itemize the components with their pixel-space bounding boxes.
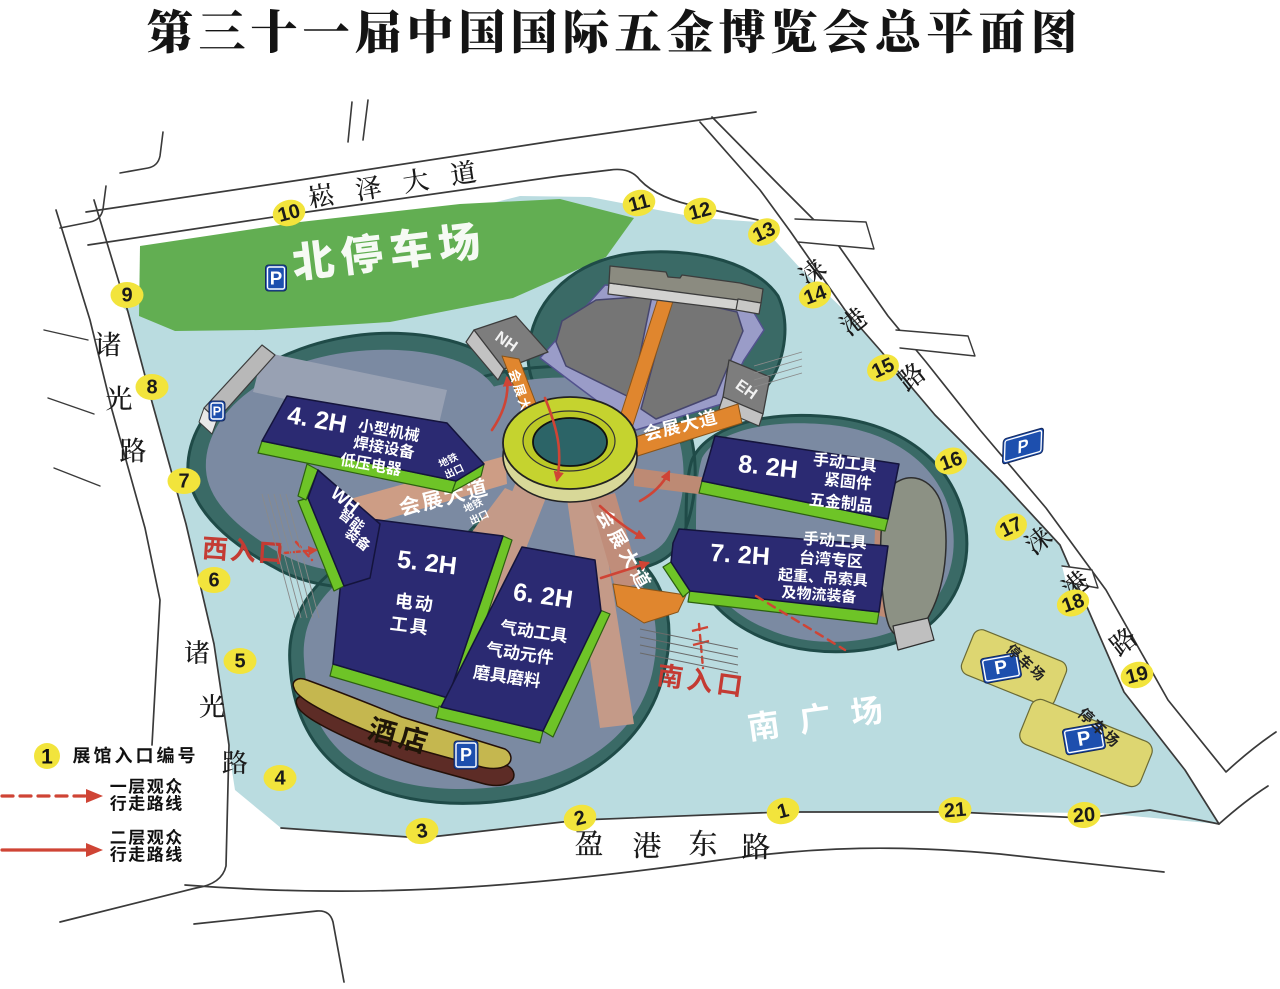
svg-text:5: 5 [234, 651, 245, 673]
svg-text:7: 7 [178, 471, 189, 493]
svg-text:1: 1 [41, 746, 53, 769]
svg-text:21: 21 [943, 799, 967, 823]
svg-text:4: 4 [274, 768, 286, 790]
svg-text:9: 9 [121, 285, 132, 307]
svg-text:P: P [460, 745, 472, 765]
svg-text:8: 8 [146, 377, 157, 399]
svg-text:P: P [213, 404, 222, 419]
svg-text:P: P [270, 268, 282, 289]
svg-text:7. 2H: 7. 2H [709, 539, 771, 571]
svg-text:20: 20 [1072, 804, 1096, 828]
svg-text:6: 6 [208, 570, 219, 592]
svg-text:P: P [1017, 434, 1029, 458]
